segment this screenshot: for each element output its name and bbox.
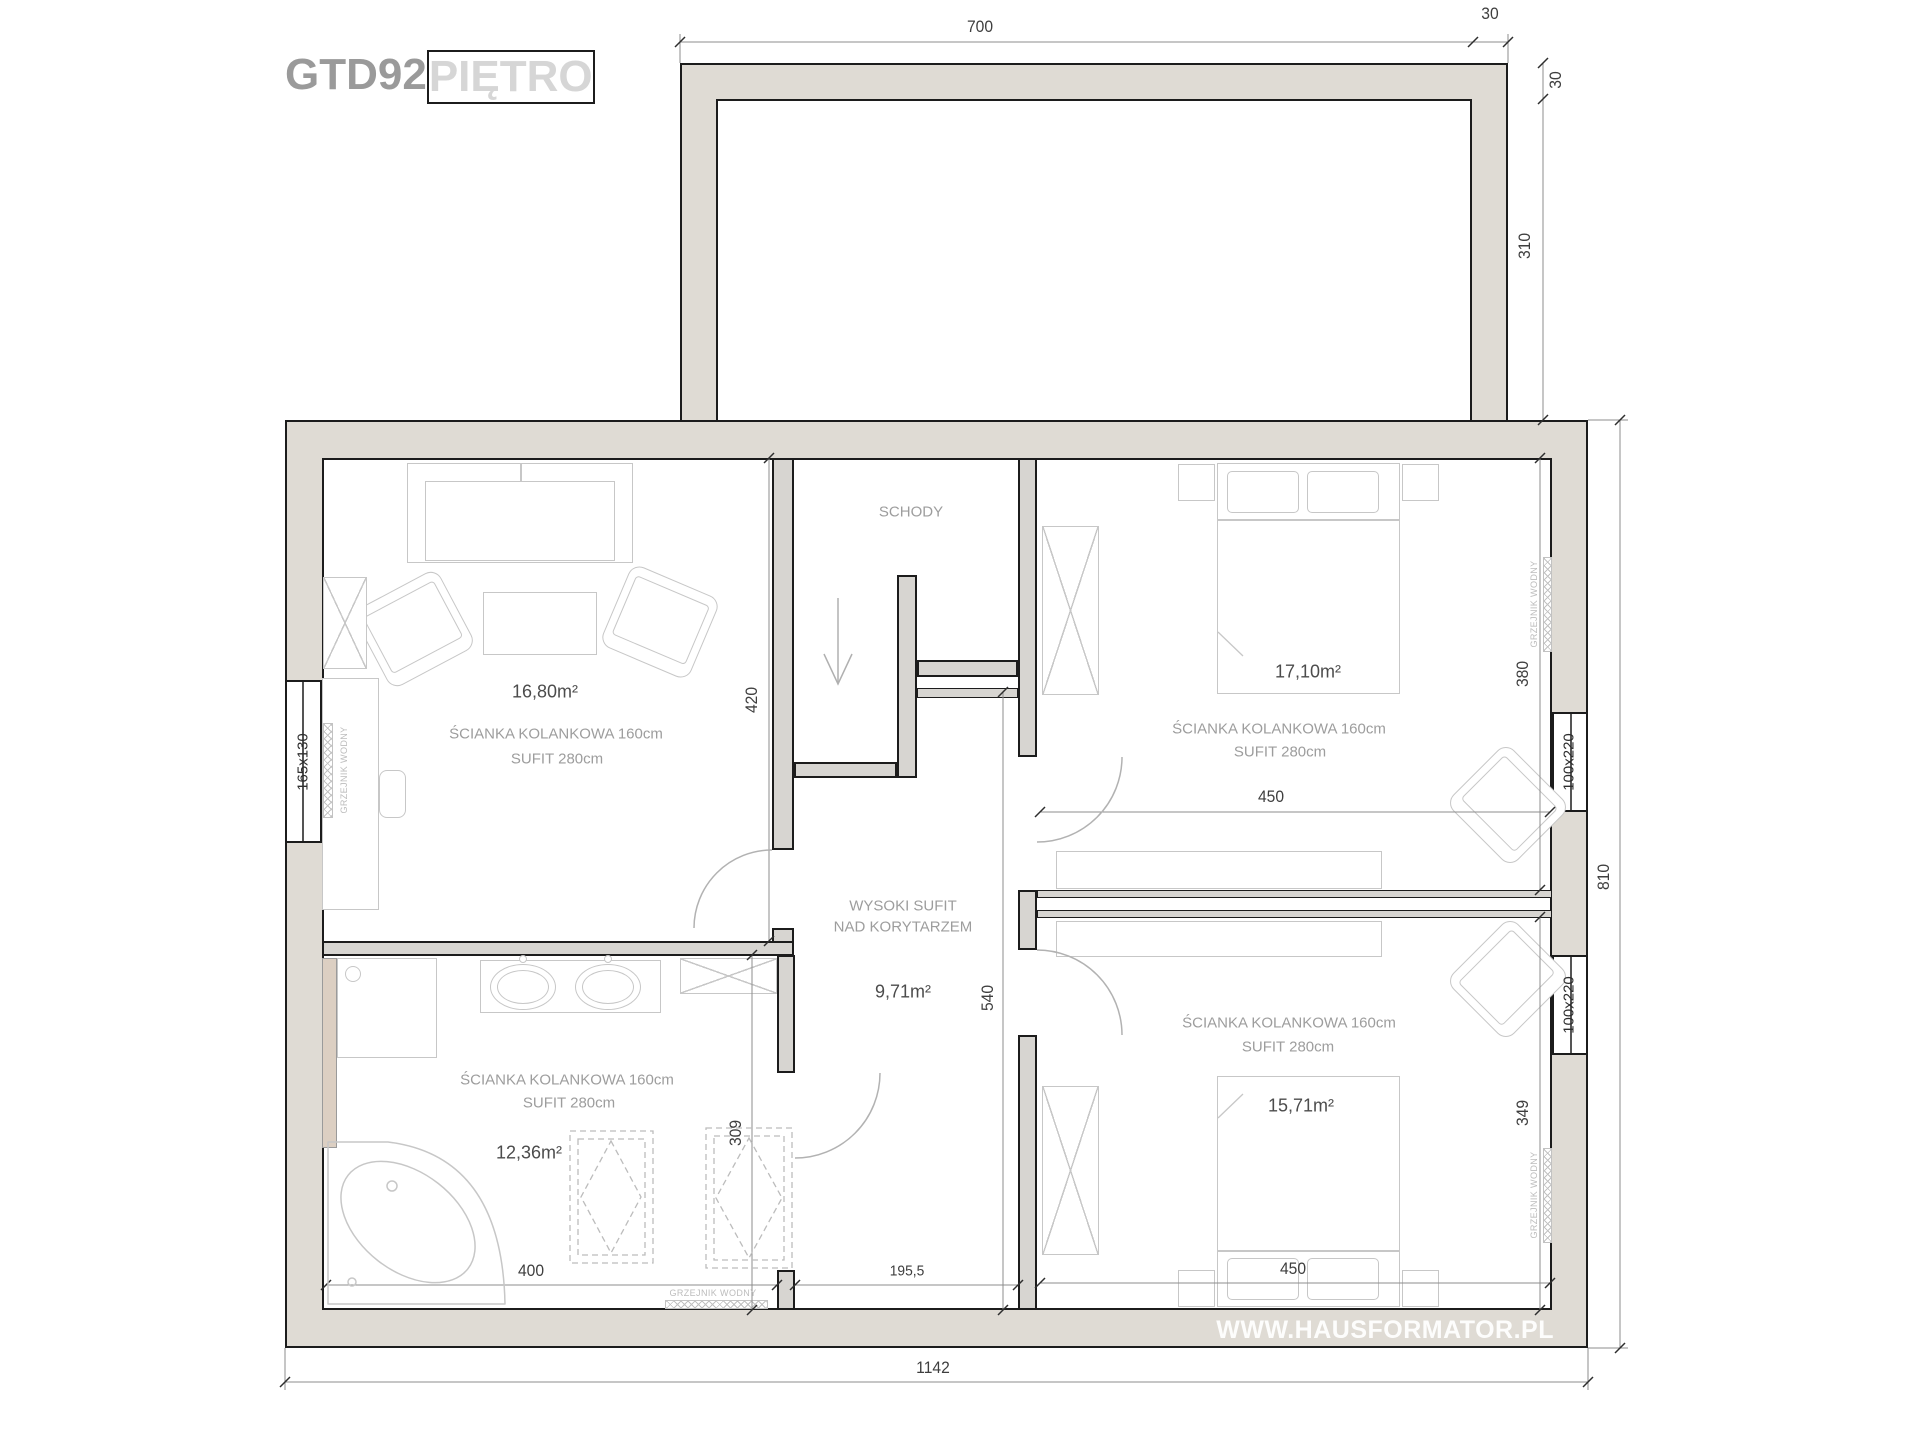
corridor-label-line2: NAD KORYTARZEM [834, 919, 973, 936]
floor-plan: GTD92 PIĘTRO 700 30 30 310 810 1142 420 … [0, 0, 1920, 1440]
desk-chair [379, 770, 406, 818]
bed-blanket-line [1217, 519, 1400, 521]
nightstand [1402, 1270, 1439, 1307]
watermark: WWW.HAUSFORMATOR.PL [1188, 1316, 1554, 1345]
dim-bath-width: 400 [518, 1261, 544, 1281]
washing-machine-dial [345, 966, 361, 982]
corridor-bedroom-wall-upper [1018, 458, 1037, 757]
dim-bedroom-bottom-height: 349 [1513, 1100, 1533, 1126]
dim-corridor-width: 195,5 [890, 1263, 925, 1280]
bedroom-top-ceiling-label: SUFIT 280cm [1234, 744, 1326, 761]
living-corridor-wall-upper [772, 458, 794, 850]
living-bathroom-wall [322, 941, 794, 956]
radiator-icon [665, 1300, 768, 1309]
dresser [1056, 851, 1382, 889]
dim-bedroom-top-width: 450 [1258, 787, 1284, 807]
bathroom-corridor-wall-upper [777, 955, 795, 1073]
radiator-label: GRZEJNIK WODNY [339, 726, 349, 813]
plan-title: GTD92 PIĘTRO [285, 50, 427, 100]
floor-label: PIĘTRO [427, 50, 595, 104]
dim-main-height: 810 [1594, 864, 1614, 890]
radiator-icon [323, 723, 333, 818]
dim-bedroom-top-height: 380 [1513, 661, 1533, 687]
living-ceiling-label: SUFIT 280cm [511, 751, 603, 768]
bathroom-ceiling-label: SUFIT 280cm [523, 1095, 615, 1112]
stair-wall-vertical [897, 575, 917, 778]
window-left-size: 165x130 [295, 733, 312, 791]
bathroom-wall-finish [322, 958, 337, 1148]
stairs-label: SCHODY [879, 504, 943, 521]
bathroom-cabinet [680, 958, 777, 994]
project-code: GTD92 [285, 50, 427, 99]
bedroom-top-kneewall-label: ŚCIANKA KOLANKOWA 160cm [1172, 721, 1386, 738]
sink-basin [582, 970, 634, 1004]
faucet-icon [519, 955, 527, 963]
dim-top-wall: 30 [1481, 4, 1498, 24]
corridor-bedroom-wall-mid [1018, 890, 1037, 950]
living-area-label: 16,80m² [512, 682, 578, 703]
dim-total-width: 1142 [916, 1358, 950, 1378]
bedroom-bottom-kneewall-label: ŚCIANKA KOLANKOWA 160cm [1182, 1015, 1396, 1032]
dim-right-wall: 30 [1546, 71, 1566, 88]
corridor-area-label: 9,71m² [875, 982, 931, 1003]
faucet-icon [604, 955, 612, 963]
bedroom-bottom-area-label: 15,71m² [1268, 1096, 1334, 1117]
dim-corridor-height: 540 [978, 985, 998, 1011]
stair-wall-horizontal-b [917, 688, 1018, 698]
dim-living-height: 420 [742, 687, 762, 713]
pillow [1227, 471, 1299, 513]
dim-top-width: 700 [967, 17, 993, 37]
bedrooms-divider-wall-b [1037, 910, 1552, 918]
wardrobe [323, 577, 367, 669]
sink-basin [497, 970, 549, 1004]
bedroom-bottom-ceiling-label: SUFIT 280cm [1242, 1039, 1334, 1056]
sofa-divider [520, 464, 522, 481]
living-kneewall-label: ŚCIANKA KOLANKOWA 160cm [449, 726, 663, 743]
stair-wall-horizontal-a [917, 660, 1018, 677]
radiator-label: GRZEJNIK WODNY [669, 1288, 756, 1298]
radiator-label: GRZEJNIK WODNY [1529, 1151, 1539, 1238]
radiator-icon [1543, 557, 1552, 652]
pillow [1307, 471, 1379, 513]
bedrooms-divider-wall-a [1037, 890, 1552, 898]
bathroom-area-label: 12,36m² [496, 1143, 562, 1164]
wardrobe [1042, 526, 1099, 695]
pillow [1307, 1258, 1379, 1300]
wardrobe [1042, 1086, 1099, 1255]
nightstand [1402, 464, 1439, 501]
corridor-bedroom-wall-lower [1018, 1035, 1037, 1310]
stair-wall-bottom [794, 762, 897, 778]
nightstand [1178, 1270, 1215, 1307]
bed-blanket-line [1217, 1250, 1400, 1252]
upper-room-floor [716, 99, 1472, 424]
dim-bath-height: 309 [726, 1120, 746, 1146]
bedroom-top-area-label: 17,10m² [1275, 662, 1341, 683]
nightstand [1178, 464, 1215, 501]
dim-upper-depth: 310 [1515, 233, 1535, 259]
radiator-label: GRZEJNIK WODNY [1529, 560, 1539, 647]
radiator-icon [1543, 1148, 1552, 1243]
dim-bedroom-bottom-width: 450 [1280, 1259, 1306, 1279]
coffee-table [483, 592, 597, 655]
window-right-bottom-size: 100x220 [1561, 976, 1578, 1034]
window-right-top-size: 100x220 [1561, 733, 1578, 791]
sofa-seat [425, 481, 615, 561]
bathroom-kneewall-label: ŚCIANKA KOLANKOWA 160cm [460, 1072, 674, 1089]
corridor-label-line1: WYSOKI SUFIT [849, 898, 957, 915]
bathroom-corridor-wall-lower [777, 1270, 795, 1310]
dresser [1056, 921, 1382, 957]
